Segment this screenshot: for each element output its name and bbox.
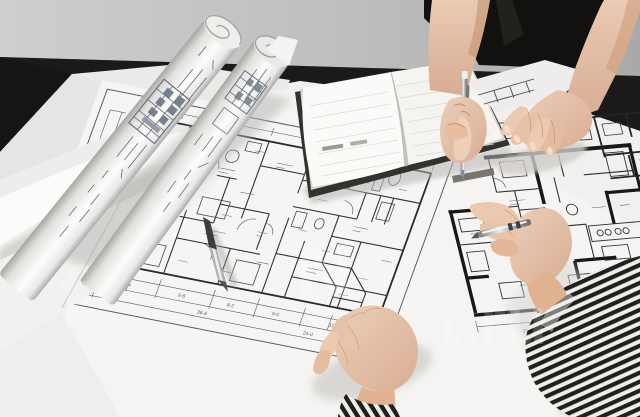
svg-text:t.ru: t.ru [438, 283, 548, 359]
svg-text:N: N [296, 227, 352, 315]
svg-text:f: f [58, 248, 88, 347]
